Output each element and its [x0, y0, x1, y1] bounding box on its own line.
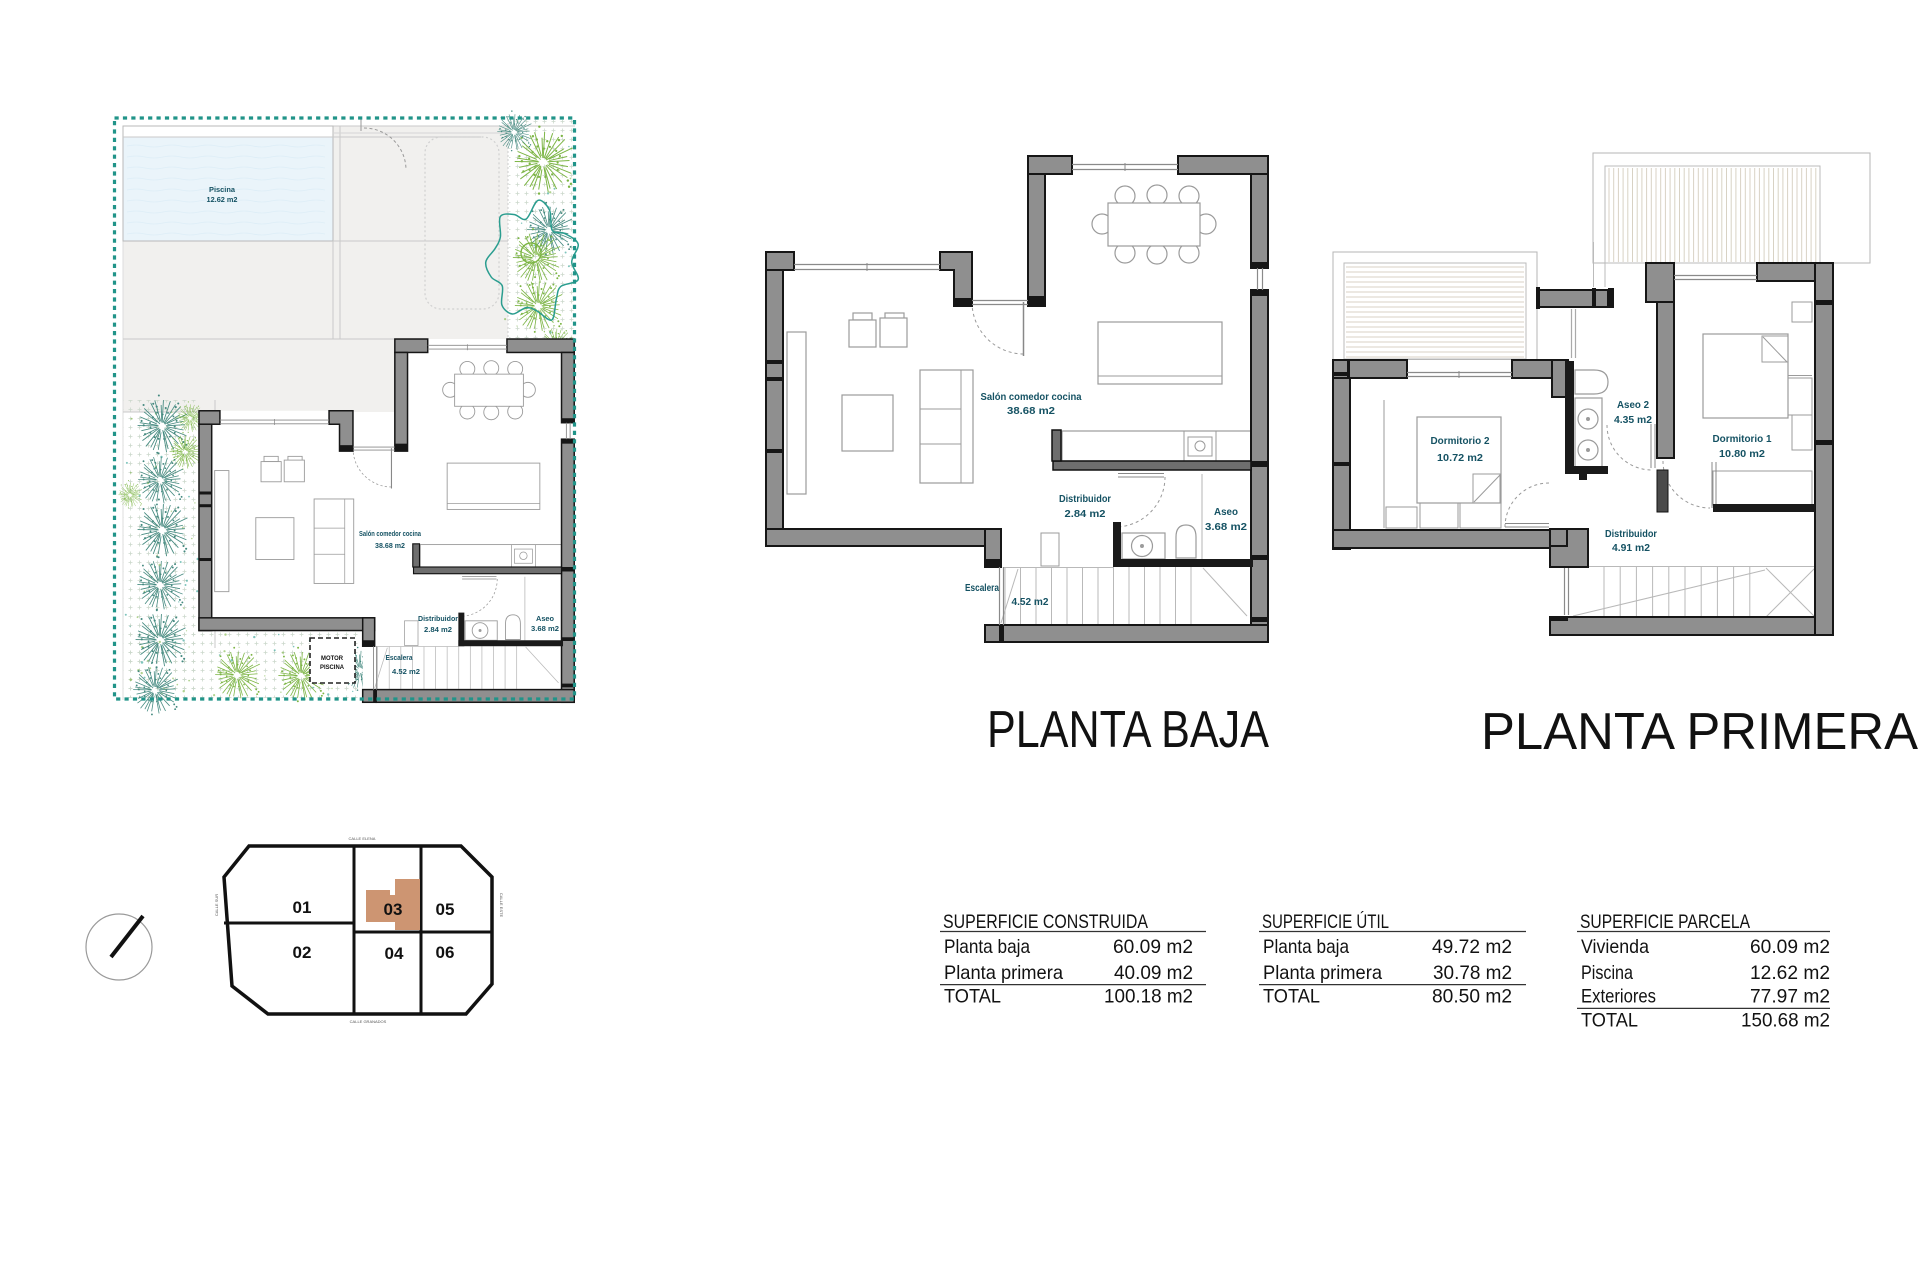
- svg-text:60.09 m2: 60.09 m2: [1113, 936, 1193, 958]
- svg-text:PLANTA BAJA: PLANTA BAJA: [987, 701, 1269, 759]
- svg-text:06: 06: [436, 943, 455, 962]
- svg-text:80.50 m2: 80.50 m2: [1432, 986, 1512, 1008]
- svg-text:Salón comedor cocina: Salón comedor cocina: [359, 529, 422, 538]
- svg-text:40.09 m2: 40.09 m2: [1114, 962, 1193, 984]
- svg-text:4.52 m2: 4.52 m2: [392, 667, 420, 676]
- svg-text:30.78 m2: 30.78 m2: [1433, 962, 1512, 984]
- svg-text:Salón comedor cocina: Salón comedor cocina: [981, 392, 1082, 403]
- svg-text:Planta baja: Planta baja: [1263, 936, 1349, 958]
- svg-text:SUPERFICIE CONSTRUIDA: SUPERFICIE CONSTRUIDA: [943, 911, 1148, 933]
- svg-text:Planta baja: Planta baja: [944, 936, 1030, 958]
- svg-text:CALLE ELENA: CALLE ELENA: [349, 836, 376, 841]
- svg-text:04: 04: [385, 944, 404, 963]
- svg-text:4.52 m2: 4.52 m2: [1012, 597, 1049, 608]
- svg-text:Escalera: Escalera: [965, 583, 999, 594]
- svg-text:10.80 m2: 10.80 m2: [1719, 449, 1765, 460]
- svg-text:38.68 m2: 38.68 m2: [375, 541, 405, 550]
- svg-text:TOTAL: TOTAL: [944, 986, 1001, 1008]
- svg-text:02: 02: [293, 943, 312, 962]
- svg-text:SUPERFICIE PARCELA: SUPERFICIE PARCELA: [1580, 911, 1750, 933]
- svg-text:49.72 m2: 49.72 m2: [1432, 936, 1512, 958]
- svg-text:Distribuidor: Distribuidor: [1605, 529, 1657, 540]
- svg-text:PLANTA PRIMERA: PLANTA PRIMERA: [1481, 703, 1918, 761]
- svg-text:PISCINA: PISCINA: [320, 665, 345, 671]
- svg-text:12.62 m2: 12.62 m2: [207, 195, 238, 204]
- svg-text:TOTAL: TOTAL: [1581, 1010, 1638, 1032]
- svg-text:3.68 m2: 3.68 m2: [1205, 522, 1247, 533]
- svg-text:CALLE SUR: CALLE SUR: [214, 894, 219, 916]
- svg-text:TOTAL: TOTAL: [1263, 986, 1320, 1008]
- svg-text:CALLE ESTE: CALLE ESTE: [499, 893, 504, 918]
- svg-text:100.18 m2: 100.18 m2: [1104, 986, 1193, 1008]
- svg-text:Escalera: Escalera: [386, 653, 414, 662]
- svg-text:77.97 m2: 77.97 m2: [1750, 986, 1830, 1008]
- svg-text:05: 05: [436, 900, 455, 919]
- svg-text:3.68 m2: 3.68 m2: [531, 624, 559, 633]
- svg-text:4.35 m2: 4.35 m2: [1614, 415, 1652, 426]
- svg-text:60.09 m2: 60.09 m2: [1750, 936, 1830, 958]
- svg-text:MOTOR: MOTOR: [321, 656, 344, 662]
- svg-text:12.62 m2: 12.62 m2: [1750, 962, 1830, 984]
- svg-text:38.68 m2: 38.68 m2: [1007, 405, 1055, 417]
- svg-text:2.84 m2: 2.84 m2: [1065, 509, 1106, 520]
- svg-text:Exteriores: Exteriores: [1581, 986, 1656, 1008]
- svg-text:Piscina: Piscina: [1581, 962, 1633, 984]
- svg-text:Planta primera: Planta primera: [1263, 962, 1382, 984]
- svg-text:01: 01: [293, 898, 312, 917]
- svg-text:4.91 m2: 4.91 m2: [1612, 543, 1650, 554]
- svg-text:Aseo: Aseo: [1214, 507, 1238, 518]
- svg-text:03: 03: [384, 900, 403, 919]
- svg-text:10.72 m2: 10.72 m2: [1437, 453, 1483, 464]
- svg-text:Planta primera: Planta primera: [944, 962, 1063, 984]
- svg-text:SUPERFICIE ÚTIL: SUPERFICIE ÚTIL: [1262, 910, 1389, 933]
- svg-text:Piscina: Piscina: [209, 185, 236, 194]
- svg-text:150.68 m2: 150.68 m2: [1741, 1010, 1830, 1032]
- svg-text:Aseo 2: Aseo 2: [1617, 400, 1649, 411]
- svg-text:Distribuidor: Distribuidor: [418, 614, 458, 623]
- svg-text:2.84 m2: 2.84 m2: [424, 625, 452, 634]
- svg-text:Distribuidor: Distribuidor: [1059, 494, 1111, 505]
- svg-text:Aseo: Aseo: [536, 614, 554, 623]
- svg-text:Dormitorio 2: Dormitorio 2: [1431, 436, 1490, 447]
- svg-text:CALLE GRANADOS: CALLE GRANADOS: [350, 1019, 387, 1024]
- svg-text:Dormitorio 1: Dormitorio 1: [1713, 434, 1772, 445]
- svg-text:Vivienda: Vivienda: [1581, 936, 1649, 958]
